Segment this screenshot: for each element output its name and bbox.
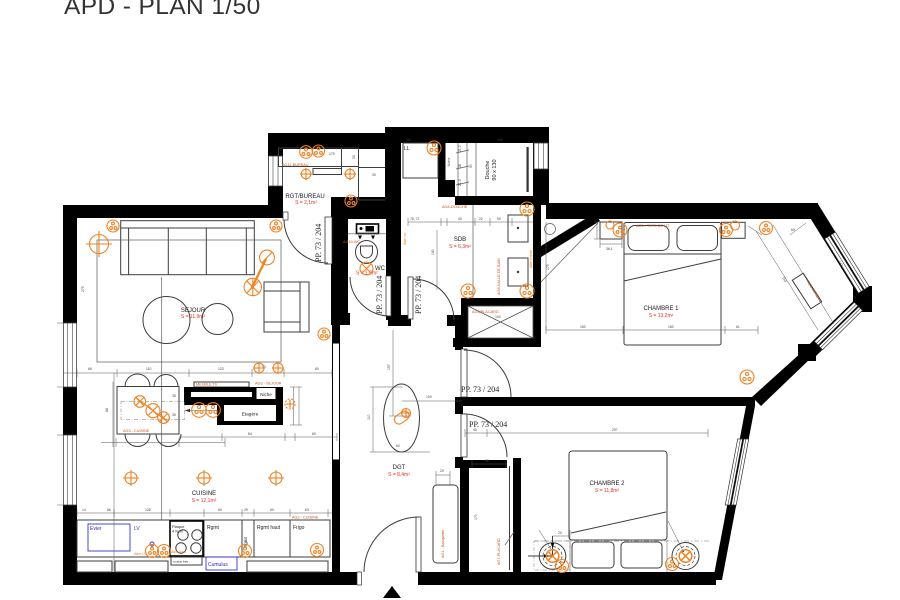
svg-text:Frigo: Frigo (293, 525, 305, 531)
svg-text:100: 100 (426, 395, 432, 399)
svg-text:SDB: SDB (454, 237, 466, 243)
svg-text:61: 61 (736, 325, 740, 329)
svg-text:PP. 73 / 204: PP. 73 / 204 (414, 276, 423, 314)
svg-text:AG4/PLACARD: AG4/PLACARD (472, 310, 499, 314)
svg-text:50: 50 (497, 217, 501, 221)
svg-text:275: 275 (81, 286, 85, 292)
svg-text:Rgmt haut: Rgmt haut (257, 525, 281, 531)
svg-text:60: 60 (312, 432, 316, 436)
svg-text:297: 297 (612, 428, 618, 432)
svg-text:88: 88 (105, 408, 109, 412)
svg-text:90 x 130: 90 x 130 (492, 159, 498, 180)
svg-text:Alim ss: Alim ss (403, 233, 407, 245)
svg-text:78, 72: 78, 72 (410, 217, 420, 221)
svg-text:AG1 - Banquette: AG1 - Banquette (441, 530, 445, 558)
svg-text:60: 60 (315, 367, 319, 371)
svg-text:CHAMBRE 1: CHAMBRE 1 (643, 306, 679, 312)
svg-text:45: 45 (473, 428, 477, 432)
svg-text:Alim miroir: Alim miroir (529, 249, 533, 268)
svg-text:PP. 73 / 204: PP. 73 / 204 (375, 276, 384, 314)
svg-text:175: 175 (546, 264, 550, 270)
svg-text:PP. 73 / 204: PP. 73 / 204 (461, 385, 499, 394)
svg-text:29: 29 (244, 508, 248, 512)
svg-text:Etagère: Etagère (242, 412, 259, 418)
svg-text:Cumulus: Cumulus (208, 562, 228, 568)
svg-text:110: 110 (146, 367, 152, 371)
svg-text:21,3: 21,3 (458, 179, 462, 186)
svg-text:66: 66 (107, 508, 111, 512)
svg-text:110: 110 (367, 414, 371, 420)
svg-text:100: 100 (495, 315, 501, 319)
svg-text:35: 35 (172, 413, 176, 417)
svg-text:22: 22 (479, 217, 483, 221)
svg-text:170: 170 (474, 514, 478, 520)
svg-text:44: 44 (407, 138, 411, 142)
svg-text:S = 12,1m²: S = 12,1m² (192, 498, 217, 504)
svg-text:30: 30 (372, 173, 376, 177)
svg-text:150: 150 (580, 325, 586, 329)
svg-text:LL: LL (404, 146, 410, 152)
svg-text:20: 20 (558, 531, 562, 535)
svg-text:DGT: DGT (393, 465, 406, 471)
svg-text:PP. 73 / 204: PP. 73 / 204 (314, 224, 323, 262)
svg-text:66: 66 (88, 367, 92, 371)
svg-text:60: 60 (396, 444, 400, 448)
svg-text:conduit frais: conduit frais (173, 560, 189, 564)
svg-text:Niche: Niche (260, 392, 272, 397)
svg-text:90: 90 (469, 164, 473, 168)
svg-text:38: 38 (458, 164, 462, 168)
svg-text:AG11-BUREAU: AG11-BUREAU (282, 163, 309, 167)
svg-text:Alim LV: Alim LV (134, 552, 147, 556)
svg-text:AG5 - TETE DE LIT: AG5 - TETE DE LIT (636, 224, 670, 228)
svg-text:33: 33 (352, 155, 356, 159)
svg-text:60: 60 (270, 508, 274, 512)
svg-text:S = 6,3m²: S = 6,3m² (449, 244, 471, 250)
svg-text:20: 20 (440, 469, 444, 473)
svg-text:160: 160 (668, 325, 674, 329)
svg-text:Niche: Niche (447, 158, 451, 167)
svg-text:MEUBLE TV: MEUBLE TV (196, 383, 218, 387)
svg-text:Alim four: Alim four (171, 550, 187, 554)
svg-text:60: 60 (485, 459, 489, 463)
svg-text:60: 60 (218, 508, 222, 512)
svg-text:21,0: 21,0 (458, 145, 462, 152)
svg-text:4 feux: 4 feux (172, 529, 183, 534)
svg-text:APD - PLAN 1/50: APD - PLAN 1/50 (64, 0, 261, 20)
svg-text:14: 14 (82, 508, 86, 512)
svg-text:AG8-DOUCHE: AG8-DOUCHE (442, 205, 468, 209)
svg-text:128: 128 (145, 508, 151, 512)
svg-text:AG2 - CUISINE: AG2 - CUISINE (292, 516, 319, 520)
svg-text:AG3 - SEJOUR: AG3 - SEJOUR (255, 382, 282, 386)
svg-text:AG8-SALLE DE BAIN: AG8-SALLE DE BAIN (497, 258, 501, 295)
svg-text:AG10-WC: AG10-WC (343, 240, 361, 244)
svg-text:S = 2,1m²: S = 2,1m² (295, 200, 317, 206)
svg-text:Douche: Douche (485, 161, 491, 180)
svg-text:S = 1,0m²: S = 1,0m² (356, 271, 378, 277)
svg-text:36,1: 36,1 (606, 247, 613, 251)
svg-text:157: 157 (387, 364, 391, 370)
svg-text:123: 123 (218, 367, 224, 371)
svg-text:Evier: Evier (90, 526, 102, 532)
svg-text:CUISINE: CUISINE (192, 491, 216, 497)
svg-text:AG7-PLACARD: AG7-PLACARD (497, 538, 501, 565)
svg-text:S = 8,4m²: S = 8,4m² (388, 472, 410, 478)
svg-text:Rgmt: Rgmt (207, 525, 220, 531)
svg-text:CHAMBRE 2: CHAMBRE 2 (589, 481, 625, 487)
svg-text:140: 140 (431, 249, 435, 255)
svg-text:35: 35 (172, 394, 176, 398)
svg-text:40: 40 (458, 217, 462, 221)
svg-text:60: 60 (791, 228, 795, 232)
svg-text:S = 11,8m²: S = 11,8m² (595, 488, 620, 494)
svg-text:LV: LV (134, 526, 140, 532)
svg-text:63: 63 (305, 508, 309, 512)
svg-text:Rgmt: Rgmt (243, 536, 248, 548)
svg-text:S = 13,2m²: S = 13,2m² (649, 313, 674, 319)
svg-text:84: 84 (248, 432, 252, 436)
svg-text:AG3 - CUISINE: AG3 - CUISINE (123, 429, 150, 433)
svg-text:179: 179 (329, 152, 335, 156)
svg-text:130: 130 (497, 138, 503, 142)
